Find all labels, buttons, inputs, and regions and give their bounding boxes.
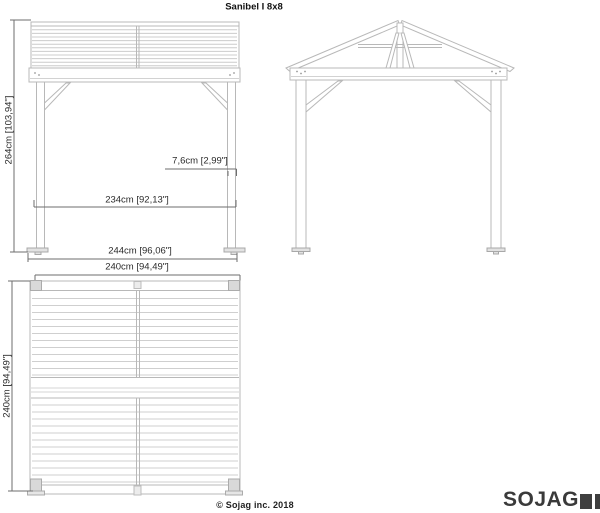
dim-roof-depth-label: 240cm [94,49"] [2, 354, 13, 418]
sojag-logo-text: SOJAG [503, 489, 579, 510]
dim-post-width-label: 7,6cm [2,99"] [172, 156, 228, 167]
drawing-title: Sanibel I 8x8 [225, 2, 283, 13]
front-elevation-drawing [286, 21, 514, 255]
dim-overall-height-label: 264cm [103,94"] [4, 96, 15, 165]
dim-clear-span-label: 234cm [92,13"] [105, 195, 169, 206]
side-elevation-drawing [27, 22, 245, 255]
technical-drawing-canvas [0, 0, 600, 513]
dim-roof-width-label: 240cm [94,49"] [105, 262, 169, 273]
copyright-text: © Sojag inc. 2018 [216, 500, 294, 510]
drawing-sheet: Sanibel I 8x8 264cm [103,94"] 7,6cm [2,9… [0, 0, 600, 513]
dim-base-width-label: 244cm [96,06"] [108, 246, 172, 257]
sojag-logo-square-partial-icon [595, 494, 600, 509]
sojag-logo-square-icon [580, 494, 592, 509]
roof-plan-drawing [28, 281, 243, 496]
